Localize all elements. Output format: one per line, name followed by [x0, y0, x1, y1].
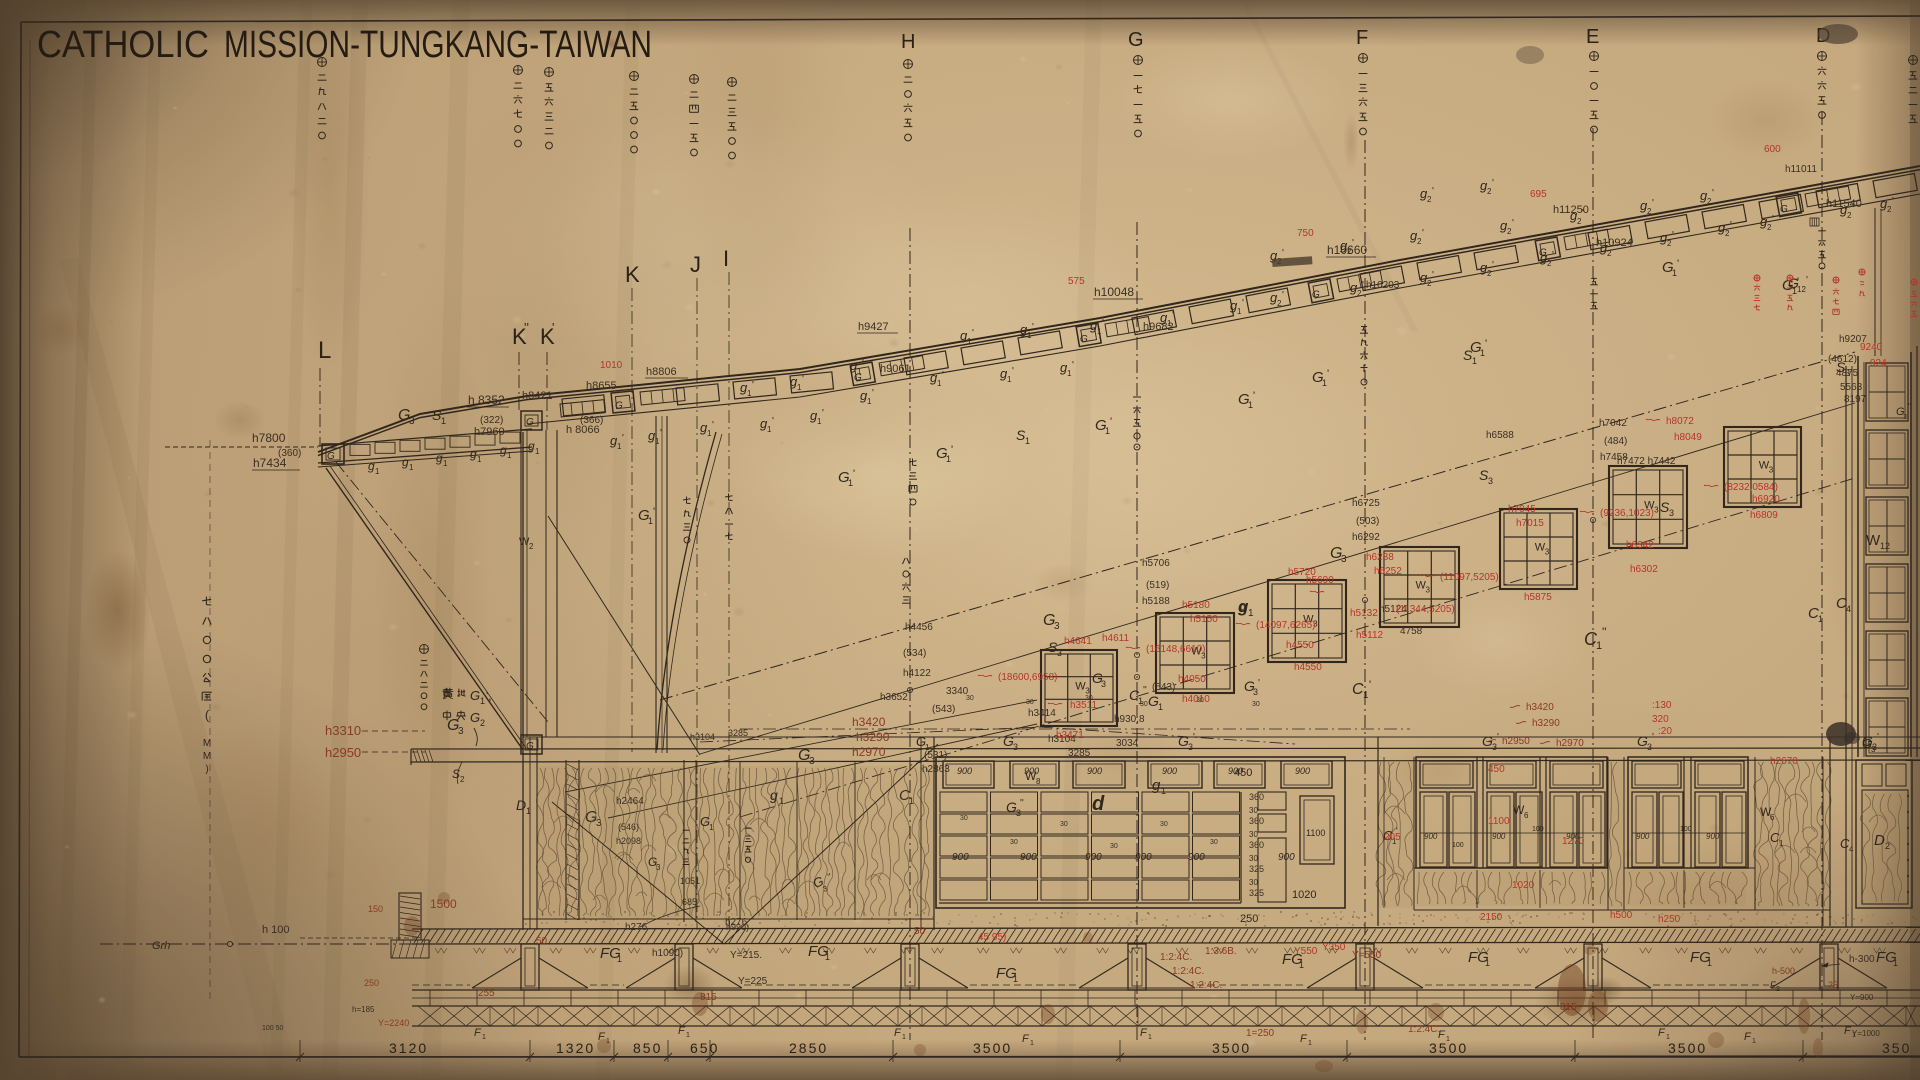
svg-text:': ': [1492, 260, 1494, 271]
svg-text:Y350: Y350: [1322, 942, 1346, 953]
svg-text:h5180: h5180: [1182, 600, 1210, 611]
svg-text:30: 30: [1140, 701, 1148, 708]
svg-text:(543): (543): [1152, 682, 1175, 693]
svg-text:30: 30: [1249, 830, 1258, 839]
svg-text:3034: 3034: [1116, 738, 1139, 749]
svg-text:1: 1: [477, 455, 482, 464]
svg-text:': ': [1806, 275, 1808, 286]
svg-text:h5132: h5132: [1350, 608, 1378, 619]
svg-text:4: 4: [1846, 604, 1851, 614]
svg-text:': ': [1072, 360, 1074, 371]
svg-text:G: G: [526, 417, 534, 428]
svg-text:': ': [1582, 208, 1584, 219]
svg-text:': ': [942, 370, 944, 381]
svg-text:h7434: h7434: [253, 456, 287, 470]
svg-text:1320: 1320: [556, 1040, 595, 1056]
svg-text:': ': [1253, 390, 1255, 402]
svg-text:3: 3: [1054, 621, 1060, 632]
svg-text:': ': [1282, 248, 1284, 259]
svg-text:g: g: [436, 451, 443, 465]
svg-text:30: 30: [1160, 821, 1168, 828]
svg-text:30: 30: [1060, 821, 1068, 828]
svg-text:h6288: h6288: [1366, 552, 1394, 563]
svg-text:1100: 1100: [1488, 816, 1510, 827]
svg-text:1: 1: [441, 416, 446, 426]
svg-text:h9427: h9427: [858, 321, 889, 333]
svg-text:H: H: [901, 31, 915, 53]
svg-text:g: g: [1152, 777, 1161, 794]
svg-text:150: 150: [368, 904, 383, 914]
svg-text:': ': [1422, 228, 1424, 239]
svg-text:h3290: h3290: [856, 730, 890, 744]
svg-text:h3511: h3511: [1070, 700, 1098, 711]
svg-text:': ': [853, 468, 855, 480]
svg-text:1: 1: [1779, 839, 1784, 848]
svg-text:': ': [1497, 732, 1499, 743]
svg-text:Y=900: Y=900: [1850, 993, 1874, 1002]
svg-text:': ': [1242, 298, 1244, 309]
svg-text:12: 12: [1880, 541, 1890, 551]
svg-text:2: 2: [1776, 986, 1780, 993]
svg-text:30: 30: [1249, 806, 1258, 815]
svg-text:1: 1: [482, 1034, 486, 1041]
svg-text:1: 1: [1472, 356, 1477, 366]
svg-text:Y=225: Y=225: [738, 976, 768, 987]
svg-text:Grh: Grh: [152, 940, 170, 952]
svg-text:h5706: h5706: [1142, 558, 1170, 569]
svg-text:': ': [1369, 679, 1371, 691]
svg-text:30: 30: [1249, 878, 1258, 887]
svg-text:30: 30: [1249, 854, 1258, 863]
svg-text:(11344,5205): (11344,5205): [1396, 604, 1455, 615]
svg-text:M: M: [203, 738, 211, 749]
svg-text:h3652: h3652: [880, 692, 908, 703]
svg-text:h6725: h6725: [1352, 498, 1380, 509]
svg-text:'': '': [1143, 685, 1147, 696]
svg-text:h3310: h3310: [325, 723, 361, 738]
svg-text:2: 2: [480, 718, 485, 728]
svg-text:3500: 3500: [973, 1040, 1012, 1056]
svg-text:3: 3: [1769, 466, 1774, 475]
svg-text:': ': [972, 328, 974, 339]
svg-text:': ': [872, 388, 874, 399]
svg-text:(366): (366): [580, 415, 603, 426]
svg-text:1: 1: [1158, 702, 1163, 712]
svg-text:': ': [1327, 368, 1329, 380]
svg-text:h10203: h10203: [1366, 280, 1400, 291]
svg-text:(11097,5205): (11097,5205): [1440, 572, 1499, 583]
svg-text:3: 3: [1492, 742, 1497, 752]
svg-text:2: 2: [1885, 841, 1890, 851]
svg-text:G: G: [615, 401, 623, 412]
svg-text:4: 4: [1849, 845, 1854, 854]
svg-text:1270: 1270: [1562, 836, 1585, 847]
svg-text:h7472 h7442: h7472 h7442: [1617, 456, 1676, 467]
svg-text:250: 250: [1240, 913, 1258, 925]
svg-text:50: 50: [914, 926, 926, 937]
svg-text:': ': [1772, 214, 1774, 225]
svg-text:h990): h990): [726, 922, 749, 932]
svg-text:(8232,0584): (8232,0584): [1724, 482, 1778, 493]
svg-text:h7800: h7800: [252, 431, 286, 445]
svg-text:900: 900: [1085, 852, 1102, 863]
svg-text:900: 900: [1636, 832, 1650, 841]
svg-text:h2464: h2464: [616, 796, 644, 807]
svg-text:F: F: [1356, 27, 1368, 49]
svg-text:1: 1: [1596, 640, 1602, 652]
svg-text:': ': [1193, 732, 1195, 743]
svg-text:50: 50: [536, 936, 548, 947]
svg-text:h4050: h4050: [1178, 674, 1206, 685]
svg-text:h7042: h7042: [1599, 418, 1627, 429]
svg-text:': ': [653, 506, 655, 518]
svg-text:900: 900: [1188, 852, 1205, 863]
svg-text:h6252: h6252: [1374, 566, 1402, 577]
svg-text:h3414: h3414: [1028, 708, 1056, 719]
svg-text:g: g: [500, 443, 507, 457]
svg-text:900: 900: [1135, 852, 1152, 863]
svg-text:h5690: h5690: [1306, 575, 1334, 586]
svg-text:(519): (519): [1146, 580, 1169, 591]
svg-text:30: 30: [1252, 701, 1260, 708]
svg-text:1: 1: [1308, 1040, 1312, 1047]
svg-text:924: 924: [1870, 358, 1887, 369]
svg-text:g: g: [368, 459, 375, 473]
svg-text:30: 30: [1010, 839, 1018, 846]
svg-text:h3290: h3290: [1532, 718, 1560, 729]
svg-text:h-500: h-500: [1772, 966, 1795, 976]
svg-text:9240: 9240: [1860, 342, 1883, 353]
svg-text:3: 3: [1341, 554, 1347, 565]
svg-text:1: 1: [1148, 1034, 1152, 1041]
svg-text:100: 100: [1452, 842, 1464, 849]
svg-text:1=250: 1=250: [1246, 1028, 1275, 1039]
svg-text:G: G: [327, 451, 335, 462]
svg-text:1: 1: [375, 467, 380, 476]
svg-text:360: 360: [1249, 792, 1264, 802]
svg-text:G: G: [1128, 29, 1144, 51]
svg-text:J: J: [690, 252, 701, 277]
svg-text:100: 100: [1680, 826, 1692, 833]
svg-text:1: 1: [779, 796, 784, 806]
svg-text:h4641: h4641: [1064, 636, 1092, 647]
svg-text:h3420: h3420: [1526, 702, 1554, 713]
svg-text:': ': [951, 444, 953, 456]
svg-text:6: 6: [1524, 811, 1529, 820]
svg-text:3: 3: [1903, 414, 1907, 421]
svg-text:12: 12: [1797, 285, 1806, 294]
svg-text:': ': [1102, 318, 1104, 329]
svg-text:Y=1000: Y=1000: [1852, 1029, 1880, 1038]
svg-text:CATHOLIC: CATHOLIC: [37, 24, 209, 66]
svg-text:': ': [1852, 202, 1854, 213]
svg-text:3: 3: [1545, 548, 1550, 557]
svg-text:1: 1: [1485, 958, 1490, 968]
svg-text:': ': [1362, 280, 1364, 291]
svg-text:': ': [660, 428, 662, 439]
svg-text:': ': [1172, 310, 1174, 321]
svg-text:g: g: [402, 455, 409, 469]
svg-text:900: 900: [1087, 766, 1102, 776]
svg-text:6: 6: [1770, 813, 1775, 822]
svg-text:(546): (546): [618, 822, 639, 832]
svg-text:3500: 3500: [1212, 1040, 1251, 1056]
svg-text:100 50: 100 50: [262, 1025, 284, 1032]
svg-text:h6809: h6809: [1750, 510, 1778, 521]
svg-text:(14097,6265): (14097,6265): [1256, 620, 1316, 631]
svg-text:E: E: [1586, 26, 1599, 48]
svg-text:Y=550: Y=550: [1352, 950, 1382, 961]
svg-text:(18600,6958): (18600,6958): [998, 672, 1058, 683]
svg-text:): ): [205, 764, 208, 775]
svg-text:8197: 8197: [1844, 394, 1867, 405]
svg-text:h6292: h6292: [1352, 532, 1380, 543]
svg-text:h5875: h5875: [1524, 592, 1552, 603]
svg-text:G: G: [1780, 204, 1788, 215]
svg-text:h8421: h8421: [522, 390, 553, 402]
svg-text:1:2:4C.: 1:2:4C.: [1190, 980, 1222, 991]
svg-text:K: K: [625, 262, 640, 287]
svg-text:h-300: h-300: [1849, 954, 1875, 965]
svg-text:': ': [1432, 186, 1434, 197]
svg-text:1: 1: [480, 696, 485, 706]
svg-text:350: 350: [1882, 1040, 1911, 1056]
svg-text:3500: 3500: [1668, 1040, 1707, 1056]
svg-text:'': '': [524, 320, 529, 335]
svg-text:h5188: h5188: [1142, 596, 1170, 607]
svg-text:30: 30: [1210, 839, 1218, 846]
svg-text:3: 3: [1669, 508, 1674, 518]
svg-text:h1090): h1090): [652, 948, 683, 959]
svg-text:(484): (484): [1604, 436, 1627, 447]
svg-text:(534): (534): [903, 648, 926, 659]
svg-text:': ': [1485, 338, 1487, 350]
svg-text:h8806: h8806: [646, 366, 677, 378]
svg-text:h4122: h4122: [903, 668, 931, 679]
svg-text:360: 360: [1249, 816, 1264, 826]
svg-text:h2670: h2670: [1770, 756, 1798, 767]
svg-text:1: 1: [1248, 608, 1254, 619]
svg-text:': ': [1730, 220, 1732, 231]
svg-text:1100: 1100: [1306, 828, 1325, 838]
svg-text:L: L: [318, 337, 331, 364]
svg-text:h6342: h6342: [1626, 540, 1654, 551]
svg-text:h10048: h10048: [1094, 285, 1134, 299]
svg-text:2: 2: [460, 775, 465, 784]
svg-text:3: 3: [1647, 742, 1652, 752]
svg-text:900: 900: [952, 852, 969, 863]
svg-text:h6920: h6920: [1752, 494, 1780, 505]
svg-text:h276: h276: [625, 922, 648, 933]
svg-text:(9236,1023): (9236,1023): [1600, 508, 1654, 519]
svg-text:900: 900: [1424, 832, 1438, 841]
svg-text:5563: 5563: [1840, 382, 1863, 393]
svg-text:850: 850: [633, 1040, 662, 1056]
svg-text:325: 325: [1249, 864, 1264, 874]
svg-text:': ': [1652, 732, 1654, 743]
svg-text:325: 325: [1249, 888, 1264, 898]
svg-text:h8655: h8655: [586, 380, 617, 392]
svg-text:3: 3: [1654, 506, 1659, 515]
svg-text:': ': [1672, 230, 1674, 241]
svg-text:h2098: h2098: [616, 836, 641, 846]
svg-text:': ': [822, 408, 824, 419]
svg-text:3: 3: [1488, 476, 1493, 486]
svg-text:1010: 1010: [600, 360, 623, 371]
svg-text:450: 450: [1234, 767, 1252, 779]
svg-text:h2950: h2950: [1502, 736, 1530, 747]
svg-text:1: 1: [902, 1034, 906, 1041]
svg-text:4758: 4758: [1400, 626, 1423, 637]
svg-text:1: 1: [409, 463, 414, 472]
svg-text:': ': [1012, 366, 1014, 377]
svg-text:'': '': [1020, 798, 1024, 809]
svg-text:': ': [1110, 416, 1112, 428]
svg-text:(16148,6610): (16148,6610): [1146, 644, 1206, 655]
svg-text:': ': [712, 420, 714, 431]
svg-text:1: 1: [1707, 958, 1712, 968]
svg-text:1: 1: [1363, 690, 1369, 701]
svg-text:h2950: h2950: [325, 745, 361, 760]
svg-text:1020: 1020: [1292, 889, 1316, 901]
svg-text:3: 3: [409, 416, 415, 427]
svg-text:450: 450: [1488, 764, 1505, 775]
svg-text:1: 1: [1299, 960, 1304, 970]
svg-text:D: D: [516, 797, 526, 813]
svg-text:': ': [552, 320, 554, 335]
svg-text:2150: 2150: [1480, 912, 1503, 923]
svg-text:1: 1: [1030, 1040, 1034, 1047]
svg-text:685: 685: [682, 897, 697, 907]
svg-text:': ': [1612, 240, 1614, 251]
svg-text:320: 320: [1652, 714, 1669, 725]
svg-text:h9061: h9061: [880, 363, 911, 375]
svg-text:h2863: h2863: [922, 764, 950, 775]
svg-text:h3420: h3420: [852, 715, 886, 729]
svg-text:': ': [1352, 238, 1354, 249]
svg-text:1051: 1051: [680, 876, 700, 886]
svg-text:1: 1: [535, 447, 540, 456]
svg-text:h11011: h11011: [1785, 164, 1817, 175]
svg-text:g: g: [770, 787, 778, 803]
svg-text:1: 1: [1818, 614, 1823, 624]
svg-text:30: 30: [1110, 843, 1118, 850]
svg-text:': ': [1652, 198, 1654, 209]
svg-text:25: 25: [1828, 980, 1838, 990]
svg-text:(4612): (4612): [1828, 354, 1857, 365]
svg-text:h4010: h4010: [1182, 694, 1210, 705]
svg-text:45 95): 45 95): [978, 932, 1006, 943]
svg-text:1:2:4C.: 1:2:4C.: [1408, 1024, 1440, 1035]
svg-text:(543): (543): [932, 704, 955, 715]
svg-text:D: D: [1874, 832, 1885, 849]
svg-text:d: d: [1092, 793, 1105, 815]
svg-text:3: 3: [458, 726, 464, 737]
svg-text:750: 750: [1297, 228, 1314, 239]
svg-text:900: 900: [1020, 852, 1037, 863]
svg-text:205: 205: [1384, 832, 1401, 843]
svg-text:',: ',: [486, 689, 492, 703]
svg-text:900: 900: [1706, 832, 1720, 841]
svg-text:1: 1: [825, 952, 830, 962]
svg-text:3: 3: [1101, 679, 1106, 689]
svg-text:3500: 3500: [1429, 1040, 1468, 1056]
svg-text:h500: h500: [1610, 910, 1633, 921]
svg-text:3: 3: [1426, 586, 1431, 595]
svg-text:3: 3: [1016, 808, 1021, 818]
svg-text:h4550: h4550: [1294, 662, 1322, 673]
svg-text:h4611: h4611: [1102, 633, 1130, 644]
svg-text:Y=215.: Y=215.: [730, 950, 762, 961]
svg-text:Y=2240: Y=2240: [378, 1018, 409, 1028]
svg-text:h3104: h3104: [690, 732, 715, 742]
svg-text:': ': [1032, 322, 1034, 333]
svg-text:(: (: [205, 708, 210, 723]
svg-text:1: 1: [1893, 958, 1898, 968]
svg-text:900: 900: [1278, 852, 1295, 863]
svg-text:575: 575: [1068, 276, 1085, 287]
svg-text:3285: 3285: [1068, 748, 1091, 759]
svg-text:2850: 2850: [789, 1040, 828, 1056]
svg-text:h=185: h=185: [352, 1005, 375, 1014]
svg-text:': ': [622, 433, 624, 444]
svg-text:1: 1: [686, 1032, 690, 1039]
svg-text:h2970: h2970: [852, 745, 886, 759]
svg-text:M: M: [203, 751, 211, 762]
svg-text:W: W: [1866, 532, 1881, 549]
svg-text:3120: 3120: [389, 1040, 428, 1056]
svg-text:h930,8: h930,8: [1114, 714, 1145, 725]
svg-text:': ': [1282, 290, 1284, 301]
svg-text:': ': [862, 358, 864, 369]
svg-text:650: 650: [690, 1040, 719, 1056]
svg-text:': ': [1892, 196, 1894, 207]
svg-text:': ': [1492, 178, 1494, 189]
svg-text::20: :20: [1658, 726, 1672, 737]
svg-text:h5150: h5150: [1190, 614, 1218, 625]
svg-text:1: 1: [1013, 974, 1018, 984]
svg-text:h7960: h7960: [474, 426, 505, 438]
svg-text:3340: 3340: [946, 686, 969, 697]
svg-text:h4550: h4550: [1286, 640, 1314, 651]
svg-text:3285: 3285: [728, 728, 748, 738]
svg-text:255: 255: [478, 988, 495, 999]
svg-text:': ': [1552, 250, 1554, 261]
svg-text:Y550: Y550: [1294, 946, 1318, 957]
svg-text:900: 900: [1492, 832, 1506, 841]
svg-text:G: G: [470, 688, 480, 703]
svg-text:900: 900: [1295, 766, 1310, 776]
svg-text:G: G: [1312, 290, 1320, 301]
svg-text:G: G: [470, 710, 480, 725]
svg-text:h4456: h4456: [905, 622, 933, 633]
svg-text:900: 900: [957, 766, 972, 776]
svg-text:h 8352: h 8352: [468, 393, 505, 407]
svg-text:3: 3: [1013, 742, 1018, 752]
svg-text:600: 600: [1764, 144, 1781, 155]
svg-text:h7045: h7045: [1508, 504, 1536, 515]
svg-text:h2970: h2970: [1556, 738, 1584, 749]
svg-text:3: 3: [1871, 745, 1876, 754]
svg-text:900: 900: [1162, 766, 1177, 776]
svg-text:3: 3: [656, 863, 661, 872]
svg-text:(531): (531): [924, 750, 947, 761]
svg-text:1020: 1020: [1512, 880, 1535, 891]
svg-text:'': '': [1602, 625, 1607, 639]
svg-text:695: 695: [1530, 189, 1547, 200]
svg-text:h8049: h8049: [1674, 432, 1702, 443]
svg-text:': ': [1512, 218, 1514, 229]
